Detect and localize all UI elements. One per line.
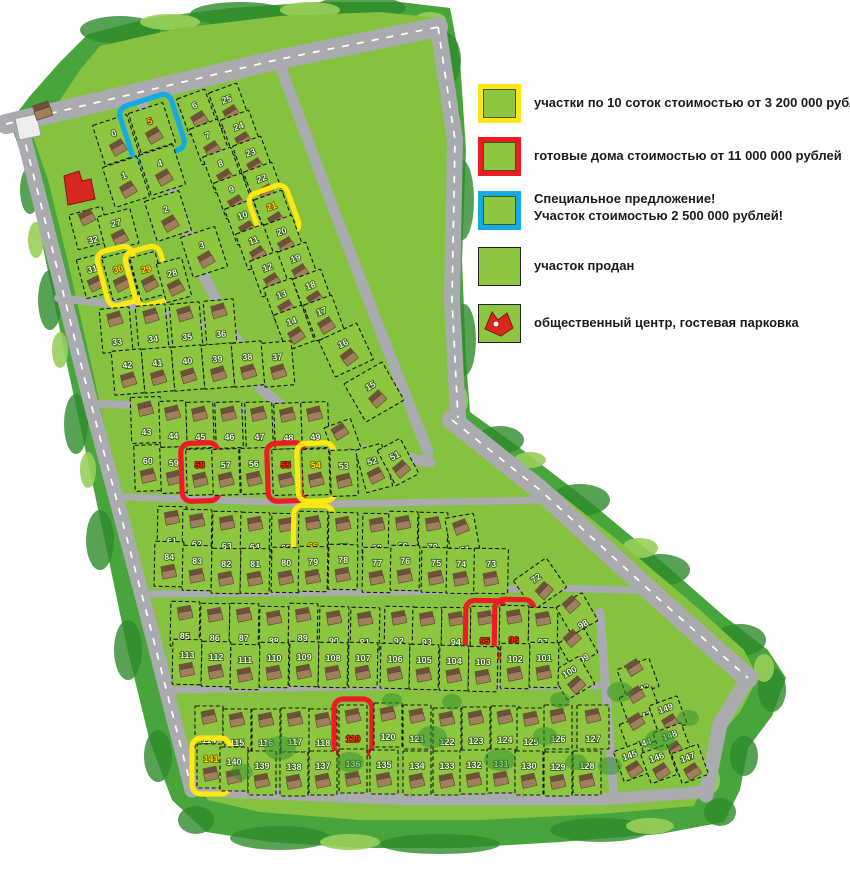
plot-119[interactable]: 119 <box>334 699 372 755</box>
plot-number: 84 <box>164 552 174 562</box>
legend-item-ready-houses: готовые дома стоимостью от 11 000 000 ру… <box>478 137 850 176</box>
plot-135[interactable]: 135 <box>370 750 398 794</box>
plot-number: 44 <box>168 431 178 441</box>
house-icon <box>207 607 223 622</box>
plot-number: 134 <box>409 761 424 771</box>
plot-53[interactable]: 53 <box>330 450 359 497</box>
plot-60[interactable]: 60 <box>134 445 163 492</box>
plot-number: 130 <box>521 761 536 771</box>
plot-number: 47 <box>254 432 264 442</box>
tree-canopy <box>550 692 570 708</box>
plot-number: 110 <box>267 653 282 663</box>
house-icon <box>419 611 435 626</box>
house-icon <box>247 516 263 531</box>
forest-blob <box>704 798 736 826</box>
plot-number: 135 <box>376 760 391 770</box>
plot-number: 34 <box>148 334 159 345</box>
house-icon <box>217 571 233 586</box>
plot-78[interactable]: 78 <box>328 544 358 589</box>
legend-item-special-offer: Специальное предложение! Участок стоимос… <box>478 191 850 230</box>
house-icon <box>326 610 342 625</box>
plot-40[interactable]: 40 <box>171 345 205 391</box>
house-icon <box>506 609 522 624</box>
plot-number: 139 <box>254 761 269 771</box>
legend-label-special-line2: Участок стоимостью 2 500 000 рублей! <box>534 208 850 225</box>
legend-item-sold: участок продан <box>478 247 850 286</box>
plot-number: 77 <box>372 558 382 568</box>
house-icon <box>415 667 431 682</box>
house-icon <box>324 665 340 680</box>
plot-number: 111 <box>238 655 252 665</box>
tree-canopy <box>484 749 516 771</box>
plot-number: 38 <box>242 352 253 363</box>
community-center-swatch <box>478 304 521 343</box>
plot-104[interactable]: 104 <box>439 645 469 690</box>
plot-110[interactable]: 110 <box>259 642 289 687</box>
plot-number: 95 <box>480 636 490 646</box>
plot-113[interactable]: 113 <box>172 639 202 684</box>
legend-label-available: участки по 10 соток стоимостью от 3 200 … <box>534 95 850 112</box>
legend-item-community-center: общественный центр, гостевая парковка <box>478 304 850 343</box>
plot-number: 74 <box>456 559 466 569</box>
tree-canopy <box>417 726 447 748</box>
house-icon <box>207 664 223 679</box>
site-plan-page: 0514236257248239221021112012191318141716… <box>0 0 850 882</box>
house-icon <box>357 611 373 626</box>
plot-77[interactable]: 77 <box>362 547 392 592</box>
plot-number: 127 <box>585 734 600 744</box>
house-icon <box>506 666 522 681</box>
house-icon <box>368 570 384 585</box>
house-icon <box>246 571 262 586</box>
house-icon <box>396 568 412 583</box>
tree-canopy <box>598 757 622 775</box>
plot-number: 59 <box>169 458 179 468</box>
house-icon <box>177 605 193 620</box>
plot-number: 101 <box>537 653 552 663</box>
legend: участки по 10 соток стоимостью от 3 200 … <box>478 84 850 356</box>
tree-canopy <box>264 736 296 760</box>
plot-80[interactable]: 80 <box>271 547 301 592</box>
plot-127[interactable]: 127 <box>577 705 609 749</box>
plot-84[interactable]: 84 <box>154 541 184 586</box>
plot-number: 58 <box>195 460 205 470</box>
forest-blob <box>730 736 758 776</box>
forest-blob <box>86 510 114 570</box>
forest-blob <box>380 834 500 854</box>
plot-number: 53 <box>339 461 349 471</box>
plot-number: 103 <box>476 657 491 667</box>
house-icon <box>427 570 443 585</box>
plot-number: 112 <box>209 652 224 662</box>
plot-87[interactable]: 87 <box>229 603 259 648</box>
plot-number: 138 <box>286 762 301 772</box>
plot-81[interactable]: 81 <box>240 548 270 593</box>
plot-105[interactable]: 105 <box>409 644 439 689</box>
plot-33[interactable]: 33 <box>99 307 133 353</box>
plot-number: 42 <box>122 360 133 371</box>
plot-number: 106 <box>388 654 403 664</box>
house-icon <box>448 611 464 626</box>
tree-canopy <box>565 754 587 770</box>
plot-number: 83 <box>192 556 202 566</box>
forest-blob <box>114 620 142 680</box>
plot-number: 57 <box>221 460 231 470</box>
house-icon <box>395 515 411 530</box>
house-icon <box>295 664 311 679</box>
house-icon <box>304 569 320 584</box>
plot-83[interactable]: 83 <box>182 545 212 590</box>
plot-number: 102 <box>508 654 523 664</box>
house-icon <box>236 607 252 622</box>
plot-number: 33 <box>112 337 123 348</box>
plot-number: 79 <box>308 557 318 567</box>
plot-number: 141 <box>203 754 218 764</box>
tree-canopy <box>677 710 699 726</box>
house-icon <box>354 665 370 680</box>
plot-number: 108 <box>326 653 341 663</box>
plot-101[interactable]: 101 <box>529 642 559 687</box>
plot-130[interactable]: 130 <box>515 751 543 795</box>
plot-number: 39 <box>212 354 223 365</box>
plot-number: 109 <box>297 652 312 662</box>
sold-plot-swatch <box>478 247 521 286</box>
plot-79[interactable]: 79 <box>298 546 328 591</box>
tree-canopy <box>607 682 633 702</box>
red-plot-swatch <box>478 137 521 176</box>
plot-number: 35 <box>182 332 193 343</box>
plot-number: 73 <box>486 559 496 569</box>
tree-canopy <box>336 752 364 772</box>
plot-38[interactable]: 38 <box>231 341 265 387</box>
house-icon <box>266 610 282 625</box>
forest-blob <box>52 332 68 368</box>
plot-41[interactable]: 41 <box>141 347 175 393</box>
plot-number: 80 <box>281 558 291 568</box>
plot-36[interactable]: 36 <box>203 299 237 345</box>
house-icon <box>482 571 498 586</box>
plot-34[interactable]: 34 <box>135 304 169 350</box>
plot-number: 129 <box>550 762 565 772</box>
plot-number: 124 <box>497 735 512 745</box>
legend-label-special-line1: Специальное предложение! <box>534 191 850 208</box>
house-icon <box>219 515 235 530</box>
plot-35[interactable]: 35 <box>169 302 203 348</box>
forest-blob <box>178 806 214 834</box>
forest-blob <box>320 834 380 850</box>
plot-number: 104 <box>447 656 462 666</box>
plot-47[interactable]: 47 <box>245 402 274 449</box>
house-icon <box>265 665 281 680</box>
house-icon <box>164 510 180 525</box>
plot-137[interactable]: 137 <box>309 751 337 795</box>
plot-number: 113 <box>180 650 195 660</box>
house-icon <box>386 666 402 681</box>
parking-pin-icon <box>482 307 516 339</box>
forest-blob <box>230 826 330 850</box>
house-icon <box>277 570 293 585</box>
plot-120[interactable]: 120 <box>374 703 402 747</box>
plot-108[interactable]: 108 <box>318 642 348 687</box>
plot-number: 118 <box>316 738 331 748</box>
tree-canopy <box>442 694 462 710</box>
plot-number: 82 <box>221 559 231 569</box>
forest-blob <box>626 818 674 834</box>
plot-73[interactable]: 73 <box>474 548 509 594</box>
legend-label-special: Специальное предложение! Участок стоимос… <box>534 191 850 225</box>
plot-44[interactable]: 44 <box>159 401 188 448</box>
house-icon <box>369 517 385 532</box>
house-icon <box>425 516 441 531</box>
plot-39[interactable]: 39 <box>201 343 235 389</box>
plot-number: 120 <box>380 732 395 742</box>
house-icon <box>334 567 350 582</box>
house-icon <box>188 568 204 583</box>
plot-43[interactable]: 43 <box>130 396 162 443</box>
plot-number: 87 <box>239 633 249 643</box>
tree-canopy <box>231 764 253 780</box>
plot-115[interactable]: 115 <box>223 709 251 753</box>
plot-number: 36 <box>216 329 227 340</box>
house-icon <box>335 516 351 531</box>
plot-112[interactable]: 112 <box>201 641 231 686</box>
yellow-plot-swatch <box>478 84 521 123</box>
plot-56[interactable]: 56 <box>240 448 269 495</box>
house-icon <box>178 662 194 677</box>
house-icon <box>535 611 551 626</box>
house-icon <box>391 610 407 625</box>
plot-74[interactable]: 74 <box>446 548 476 593</box>
house-icon <box>236 667 252 682</box>
house-icon <box>535 665 551 680</box>
plot-number: 60 <box>143 456 153 466</box>
forest-blob <box>80 452 96 488</box>
plot-number: 75 <box>431 558 441 568</box>
plot-111[interactable]: 111 <box>230 644 260 689</box>
house-icon <box>474 669 490 684</box>
house-icon <box>295 607 311 622</box>
house-icon <box>305 515 321 530</box>
plot-number: 37 <box>272 352 283 363</box>
house-icon <box>189 513 205 528</box>
legend-item-available-plots: участки по 10 соток стоимостью от 3 200 … <box>478 84 850 123</box>
legend-label-houses: готовые дома стоимостью от 11 000 000 ру… <box>534 148 850 165</box>
tree-canopy <box>533 727 557 745</box>
plot-number: 132 <box>466 760 481 770</box>
plot-number: 78 <box>338 555 348 565</box>
plot-57[interactable]: 57 <box>212 449 241 496</box>
plot-103[interactable]: 103 <box>468 646 498 691</box>
blue-plot-swatch <box>478 191 521 230</box>
house-icon <box>477 610 493 625</box>
plot-number: 46 <box>224 432 234 442</box>
plot-number: 81 <box>250 559 260 569</box>
plot-number: 56 <box>249 459 259 469</box>
plot-76[interactable]: 76 <box>390 545 420 590</box>
plot-number: 43 <box>141 427 151 437</box>
plot-number: 55 <box>281 460 291 470</box>
legend-label-center: общественный центр, гостевая парковка <box>534 315 850 332</box>
plot-106[interactable]: 106 <box>380 643 410 688</box>
plot-number: 76 <box>400 556 410 566</box>
plot-number: 123 <box>468 736 483 746</box>
plot-124[interactable]: 124 <box>491 706 519 750</box>
plot-107[interactable]: 107 <box>348 642 378 687</box>
forest-blob <box>144 730 172 782</box>
house-icon <box>160 564 176 579</box>
plot-37[interactable]: 37 <box>261 341 295 387</box>
plot-number: 54 <box>311 460 321 470</box>
plot-number: 41 <box>152 358 163 369</box>
plot-42[interactable]: 42 <box>111 349 145 395</box>
plot-109[interactable]: 109 <box>289 641 319 686</box>
plot-82[interactable]: 82 <box>211 548 241 593</box>
plot-number: 40 <box>182 356 193 367</box>
plot-133[interactable]: 133 <box>433 751 461 795</box>
house-icon <box>452 571 468 586</box>
plot-46[interactable]: 46 <box>215 402 244 449</box>
plot-102[interactable]: 102 <box>500 643 530 688</box>
plot-114[interactable]: 114 <box>195 706 223 750</box>
tree-canopy <box>645 729 675 751</box>
plot-number: 119 <box>346 734 361 744</box>
plot-number: 137 <box>315 761 330 771</box>
plot-132[interactable]: 132 <box>460 750 488 794</box>
plot-number: 107 <box>356 653 371 663</box>
plot-134[interactable]: 134 <box>403 751 431 795</box>
house-icon <box>445 668 461 683</box>
plot-123[interactable]: 123 <box>462 707 490 751</box>
legend-label-sold: участок продан <box>534 258 850 275</box>
plot-number: 133 <box>439 761 454 771</box>
plot-number: 105 <box>417 655 432 665</box>
tree-canopy <box>382 693 402 707</box>
